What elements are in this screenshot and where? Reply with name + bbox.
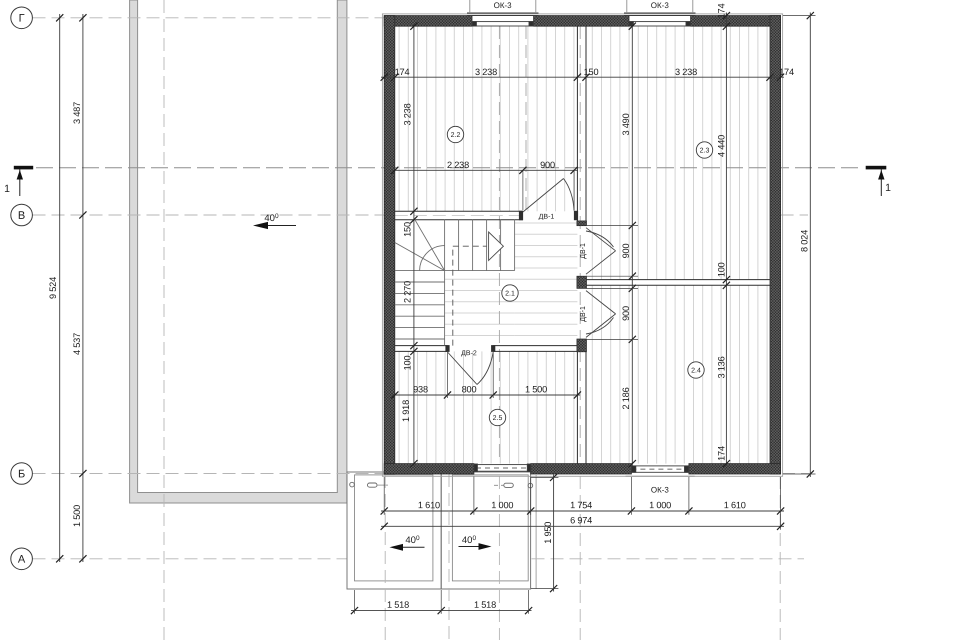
svg-text:4 537: 4 537 bbox=[72, 333, 82, 355]
svg-text:ДВ-1: ДВ-1 bbox=[580, 243, 587, 259]
svg-text:В: В bbox=[18, 210, 25, 222]
svg-text:900: 900 bbox=[540, 160, 555, 170]
svg-text:8 024: 8 024 bbox=[800, 230, 810, 252]
svg-text:1: 1 bbox=[885, 182, 891, 194]
svg-text:174: 174 bbox=[716, 446, 726, 461]
svg-text:150: 150 bbox=[402, 222, 412, 237]
svg-text:174: 174 bbox=[779, 67, 794, 77]
svg-text:938: 938 bbox=[413, 384, 428, 394]
svg-text:1 754: 1 754 bbox=[570, 500, 592, 510]
svg-text:800: 800 bbox=[462, 384, 477, 394]
svg-text:3 238: 3 238 bbox=[475, 67, 497, 77]
svg-text:1 518: 1 518 bbox=[387, 600, 409, 610]
svg-text:2.1: 2.1 bbox=[505, 290, 515, 297]
svg-text:2 238: 2 238 bbox=[447, 160, 469, 170]
svg-text:174: 174 bbox=[717, 4, 727, 19]
svg-text:ДВ-1: ДВ-1 bbox=[580, 306, 587, 322]
svg-text:400: 400 bbox=[462, 535, 477, 546]
svg-text:1 000: 1 000 bbox=[649, 500, 671, 510]
svg-text:3 238: 3 238 bbox=[402, 103, 412, 125]
svg-text:6 974: 6 974 bbox=[570, 515, 592, 525]
svg-text:Г: Г bbox=[19, 13, 25, 25]
svg-text:Б: Б bbox=[18, 468, 25, 480]
svg-text:ДВ-2: ДВ-2 bbox=[461, 350, 477, 357]
svg-text:1 918: 1 918 bbox=[401, 400, 411, 422]
svg-text:3 136: 3 136 bbox=[716, 356, 726, 378]
svg-text:1 610: 1 610 bbox=[724, 500, 746, 510]
svg-text:1 500: 1 500 bbox=[525, 384, 547, 394]
svg-text:ОК-3: ОК-3 bbox=[494, 1, 513, 10]
svg-text:2 270: 2 270 bbox=[402, 281, 412, 303]
svg-text:ДВ-1: ДВ-1 bbox=[539, 214, 555, 221]
svg-text:100: 100 bbox=[716, 262, 726, 277]
svg-text:1 000: 1 000 bbox=[491, 500, 513, 510]
svg-text:2.5: 2.5 bbox=[493, 415, 503, 422]
svg-text:2.4: 2.4 bbox=[691, 367, 701, 374]
svg-text:2.3: 2.3 bbox=[700, 147, 710, 154]
svg-text:150: 150 bbox=[584, 67, 599, 77]
svg-text:174: 174 bbox=[395, 67, 410, 77]
svg-text:100: 100 bbox=[402, 356, 412, 371]
svg-text:2 186: 2 186 bbox=[621, 387, 631, 409]
svg-text:3 238: 3 238 bbox=[675, 67, 697, 77]
svg-text:400: 400 bbox=[405, 535, 420, 546]
svg-text:ОК-3: ОК-3 bbox=[651, 1, 670, 10]
svg-text:1: 1 bbox=[4, 183, 10, 195]
svg-text:9 524: 9 524 bbox=[48, 277, 58, 299]
svg-text:1 500: 1 500 bbox=[72, 505, 82, 527]
svg-text:1 518: 1 518 bbox=[474, 600, 496, 610]
svg-text:1 950: 1 950 bbox=[543, 522, 553, 544]
svg-text:4 440: 4 440 bbox=[716, 135, 726, 157]
svg-text:1 610: 1 610 bbox=[418, 500, 440, 510]
svg-text:900: 900 bbox=[621, 244, 631, 259]
svg-text:А: А bbox=[18, 554, 26, 566]
svg-text:900: 900 bbox=[621, 306, 631, 321]
svg-text:2.2: 2.2 bbox=[451, 132, 461, 139]
svg-text:3 487: 3 487 bbox=[72, 102, 82, 124]
svg-text:ОК-3: ОК-3 bbox=[651, 485, 670, 494]
svg-text:3 490: 3 490 bbox=[621, 113, 631, 135]
